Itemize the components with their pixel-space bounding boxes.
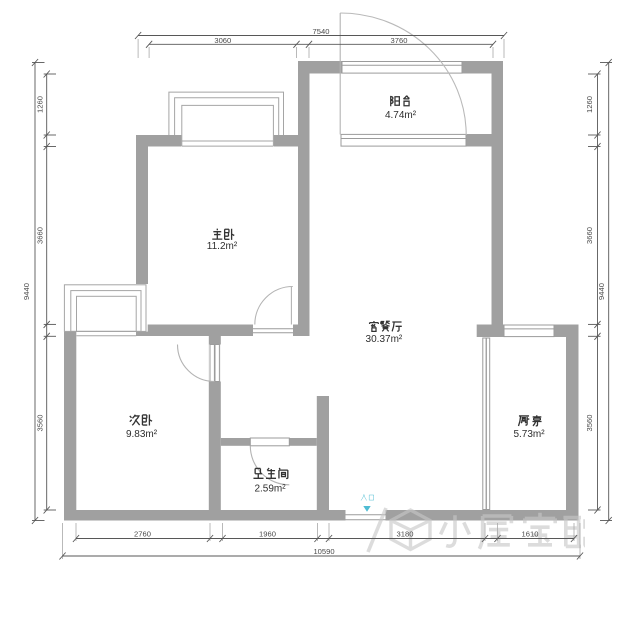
svg-text:3760: 3760 — [391, 36, 408, 45]
svg-text:3660: 3660 — [585, 227, 594, 244]
svg-text:2760: 2760 — [134, 529, 151, 538]
svg-text:9440: 9440 — [22, 283, 31, 300]
svg-text:5.73m²: 5.73m² — [513, 429, 545, 440]
svg-text:7540: 7540 — [313, 27, 330, 36]
svg-text:10590: 10590 — [313, 547, 334, 556]
svg-text:1260: 1260 — [36, 96, 45, 113]
svg-text:3060: 3060 — [214, 36, 231, 45]
svg-text:3180: 3180 — [397, 529, 414, 538]
svg-text:30.37m²: 30.37m² — [366, 334, 403, 345]
svg-text:9.83m²: 9.83m² — [126, 429, 158, 440]
svg-text:3560: 3560 — [585, 415, 594, 432]
svg-text:1260: 1260 — [585, 96, 594, 113]
svg-text:3560: 3560 — [36, 415, 45, 432]
svg-text:4.74m²: 4.74m² — [385, 110, 417, 121]
svg-text:3660: 3660 — [36, 227, 45, 244]
svg-text:11.2m²: 11.2m² — [207, 241, 238, 252]
svg-text:2.59m²: 2.59m² — [254, 484, 286, 495]
svg-text:1960: 1960 — [259, 529, 276, 538]
svg-text:9440: 9440 — [597, 283, 606, 300]
svg-text:1610: 1610 — [522, 529, 539, 538]
